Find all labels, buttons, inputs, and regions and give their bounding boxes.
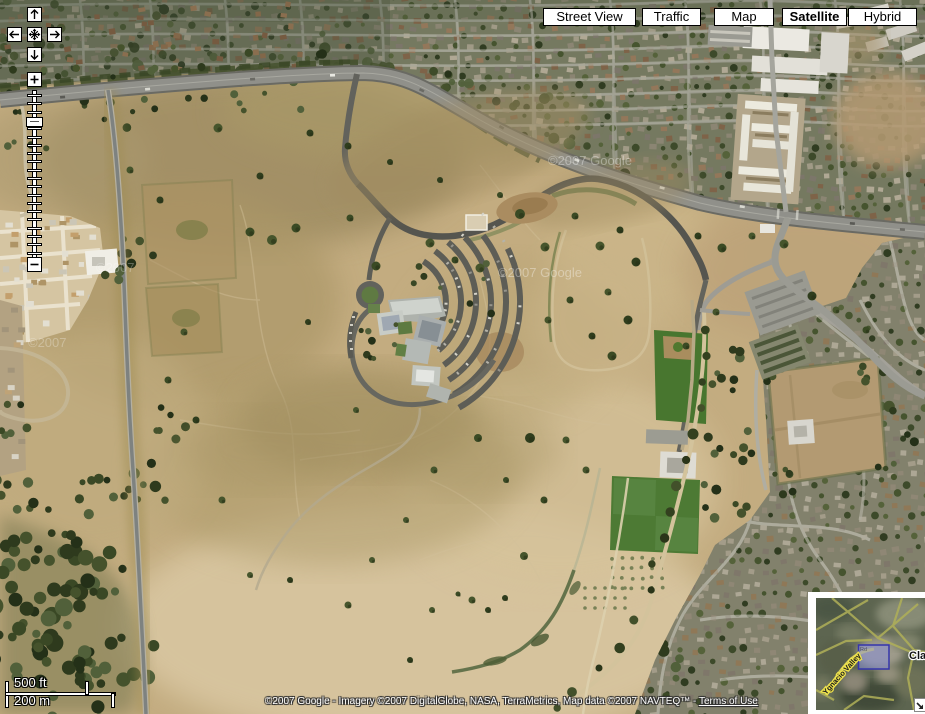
- svg-text:©2007: ©2007: [96, 260, 135, 275]
- svg-text:©2007 Google: ©2007 Google: [498, 265, 582, 280]
- svg-text:Rd: Rd: [860, 647, 867, 653]
- svg-text:©2007: ©2007: [28, 335, 67, 350]
- svg-text:©2007 Google: ©2007 Google: [548, 153, 632, 168]
- svg-text:Cla: Cla: [909, 650, 925, 662]
